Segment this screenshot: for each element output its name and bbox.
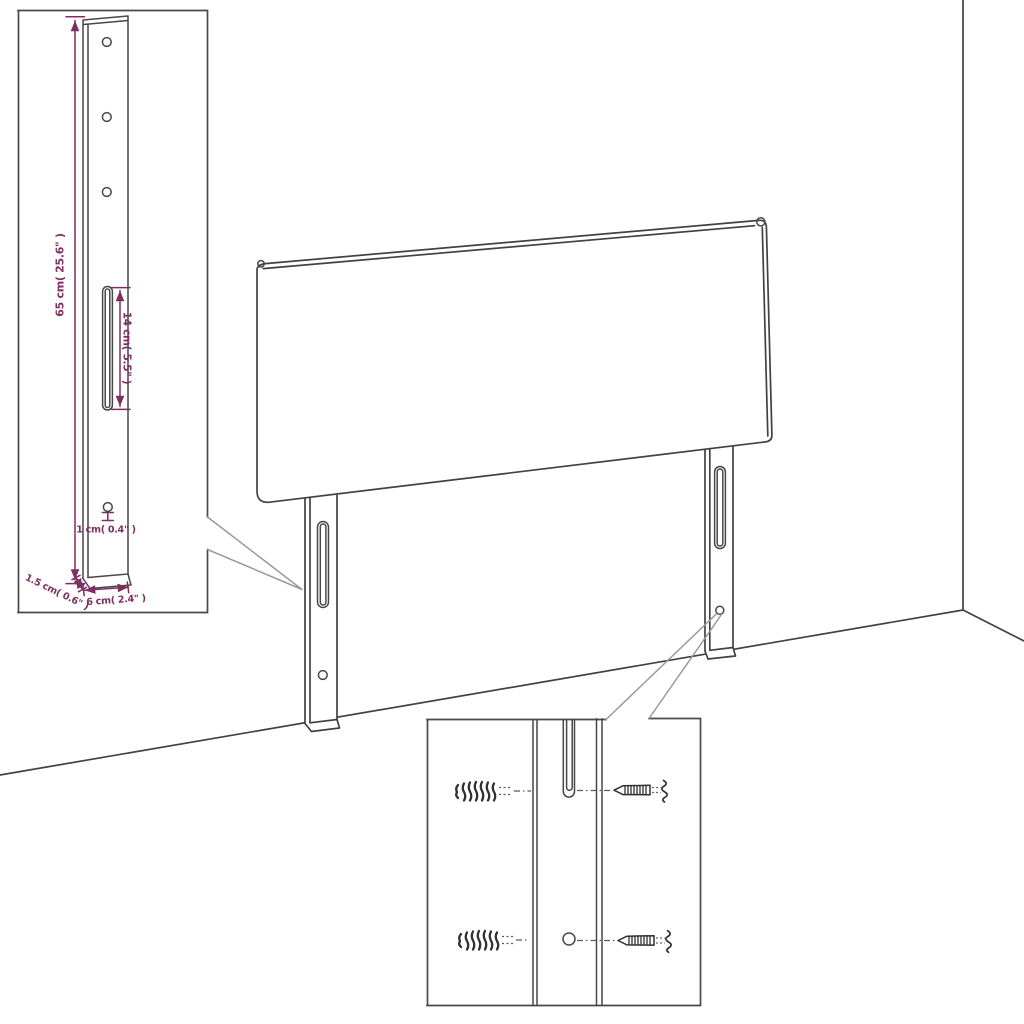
dim-label-hole-diameter: 1 cm( 0.4" ) xyxy=(76,525,136,536)
headboard-panel xyxy=(257,218,772,503)
dim-label-slot-length: 14 cm( 5.5" ) xyxy=(121,312,133,385)
headboard-right-leg xyxy=(705,444,736,659)
headboard-left-leg xyxy=(305,492,340,732)
floor-line-right xyxy=(963,610,1024,641)
illustration-canvas: 65 cm( 25.6" ) 14 cm( 5.5" ) 1 cm( 0.4" … xyxy=(0,0,1024,1024)
mounting-detail-inset xyxy=(427,614,722,1006)
leg-detail-callout-wedge xyxy=(208,517,303,590)
headboard-diagram-svg: 65 cm( 25.6" ) 14 cm( 5.5" ) 1 cm( 0.4" … xyxy=(0,0,1024,1024)
dim-label-leg-height: 65 cm( 25.6" ) xyxy=(54,233,67,317)
